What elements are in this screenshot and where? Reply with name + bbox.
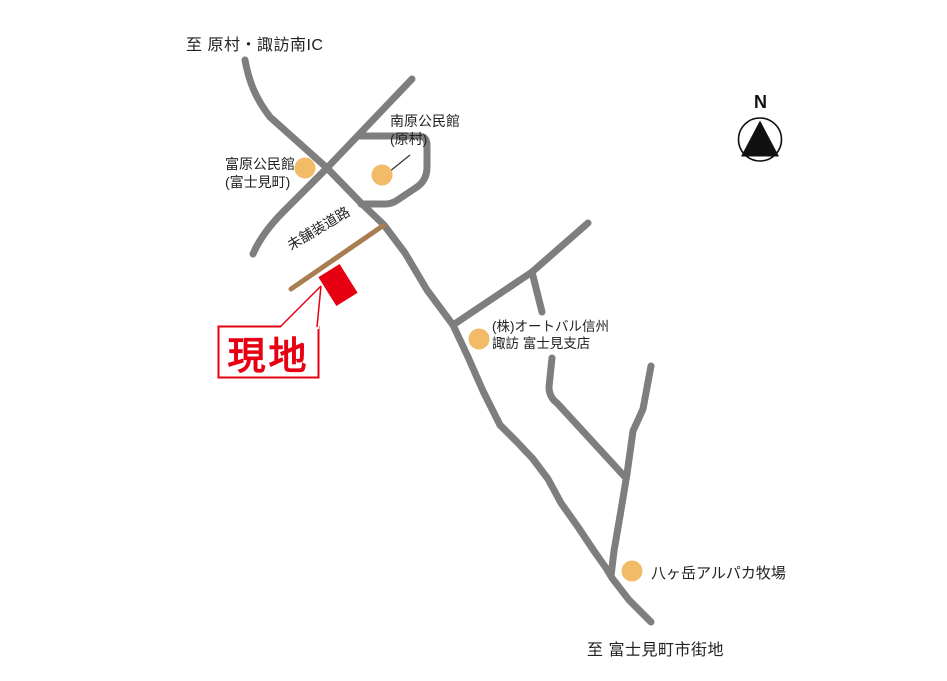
north-compass-icon [739, 118, 782, 161]
site-label: 現地 [218, 327, 319, 377]
landmark-label-tomihara: 富原公民館 (富士見町) [225, 155, 295, 191]
landmark-dot-tomihara [295, 158, 316, 179]
destination-label-bottom: 至 富士見町市街地 [587, 636, 724, 660]
landmark-dot-autobal [469, 329, 490, 350]
landmark-name: 富原公民館 [225, 156, 295, 172]
landmark-subname: 諏訪 富士見支店 [492, 336, 590, 351]
map-canvas [0, 0, 947, 681]
landmark-subname: (原村) [390, 130, 460, 148]
landmark-name: (株)オートバル信州 [492, 319, 609, 334]
landmark-label-autobal: (株)オートバル信州 諏訪 富士見支店 [492, 318, 609, 352]
compass-north-letter: N [745, 92, 776, 113]
landmark-dot-nanbara [372, 165, 393, 186]
destination-label-top: 至 原村・諏訪南IC [186, 31, 323, 55]
landmark-subname: (富士見町) [225, 173, 295, 191]
leader-line [389, 155, 410, 172]
landmark-label-alpaca: 八ヶ岳アルパカ牧場 [651, 562, 786, 583]
access-map: 至 原村・諏訪南IC 南原公民館 (原村) 富原公民館 (富士見町) 未舗装道路… [0, 0, 947, 681]
road-branch-east-upper [453, 223, 588, 325]
road-branch-stub [532, 272, 542, 312]
landmark-label-nanbara: 南原公民館 (原村) [390, 112, 460, 148]
road-branch-middle [549, 358, 625, 477]
landmark-name: 南原公民館 [390, 113, 460, 129]
site-marker [318, 264, 357, 306]
landmark-dot-alpaca [622, 561, 643, 582]
